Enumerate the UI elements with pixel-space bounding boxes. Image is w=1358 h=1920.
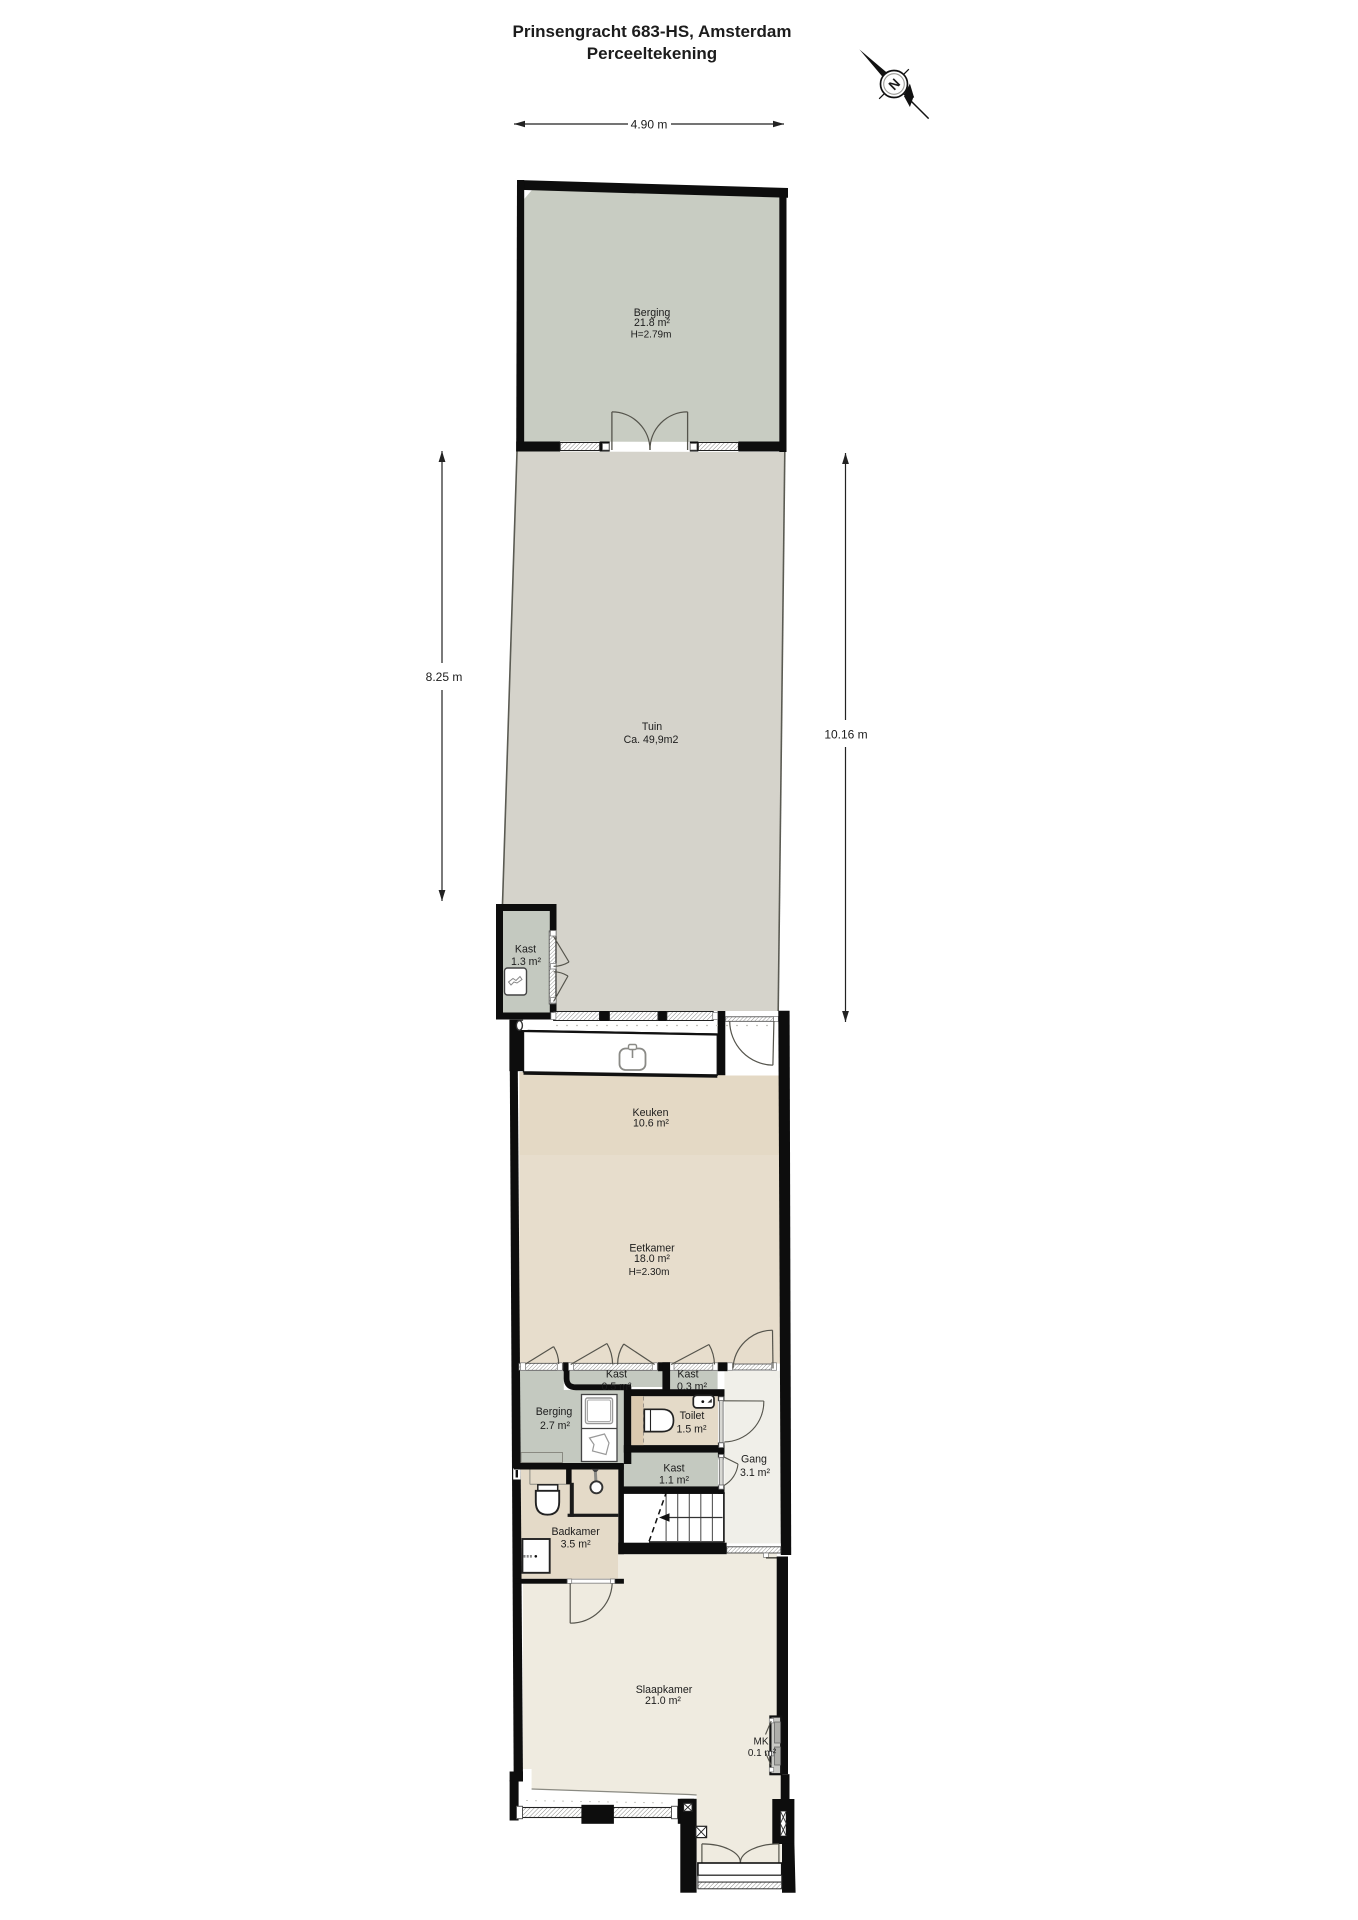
svg-text:8.25 m: 8.25 m: [426, 670, 463, 684]
svg-text:Kast: Kast: [663, 1463, 684, 1475]
svg-text:21.8 m²: 21.8 m²: [634, 317, 670, 329]
svg-text:0.3 m²: 0.3 m²: [677, 1381, 707, 1393]
svg-text:10.6 m²: 10.6 m²: [633, 1118, 669, 1130]
svg-text:H=2.30m: H=2.30m: [629, 1267, 670, 1278]
svg-text:Kast: Kast: [606, 1369, 627, 1381]
svg-text:10.16 m: 10.16 m: [824, 728, 867, 742]
svg-text:21.0 m²: 21.0 m²: [645, 1695, 681, 1707]
svg-text:1.1 m²: 1.1 m²: [659, 1475, 689, 1487]
svg-text:2.7 m²: 2.7 m²: [540, 1420, 570, 1432]
svg-text:MK: MK: [754, 1737, 769, 1748]
svg-text:0.5 m²: 0.5 m²: [601, 1381, 631, 1393]
svg-text:Ca. 49,9m2: Ca. 49,9m2: [624, 734, 679, 746]
svg-text:Perceeltekening: Perceeltekening: [587, 44, 717, 63]
svg-text:3.5 m²: 3.5 m²: [561, 1539, 591, 1551]
svg-text:Kast: Kast: [515, 944, 536, 956]
svg-text:Kast: Kast: [677, 1369, 698, 1381]
svg-text:3.1 m²: 3.1 m²: [740, 1467, 770, 1479]
svg-text:Tuin: Tuin: [642, 721, 662, 733]
svg-text:Berging: Berging: [536, 1406, 573, 1418]
svg-text:Gang: Gang: [741, 1454, 767, 1466]
svg-text:4.90 m: 4.90 m: [631, 118, 668, 132]
svg-text:1.3 m²: 1.3 m²: [511, 956, 541, 968]
svg-text:H=2.79m: H=2.79m: [631, 330, 672, 341]
svg-text:Toilet: Toilet: [680, 1410, 705, 1422]
svg-text:1.5 m²: 1.5 m²: [676, 1424, 706, 1436]
svg-text:Badkamer: Badkamer: [551, 1526, 600, 1538]
svg-text:18.0 m²: 18.0 m²: [634, 1253, 670, 1265]
svg-text:0.1 m²: 0.1 m²: [748, 1748, 777, 1759]
svg-text:Prinsengracht 683-HS, Amsterda: Prinsengracht 683-HS, Amsterdam: [512, 22, 791, 41]
